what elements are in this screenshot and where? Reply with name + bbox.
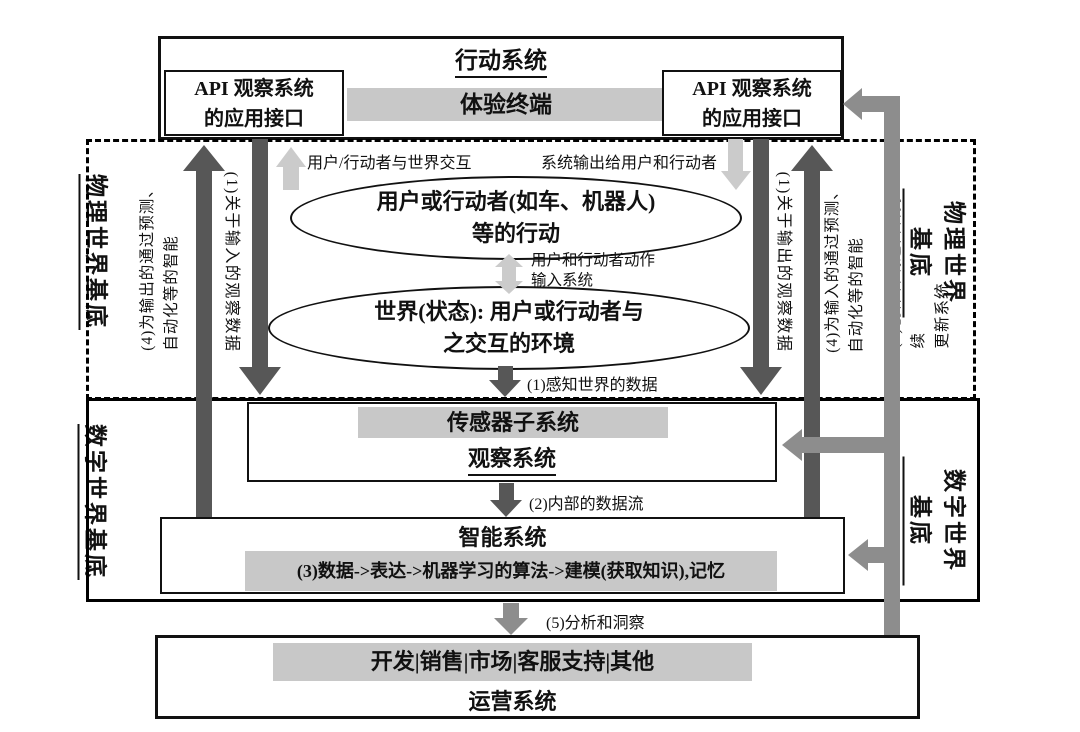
ml-pipeline-bar: (3)数据->表达->机器学习的算法->建模(获取知识),记忆 xyxy=(245,551,777,591)
action-input-double-arrow-bottom-icon xyxy=(495,281,523,297)
user-interaction-up-arrow-shaft xyxy=(283,162,299,190)
interaction-caption-right: 系统输出给用户和行动者 xyxy=(541,149,717,173)
observation-system-title-row: 观察系统 xyxy=(247,441,777,476)
internal-flow-arrow-shaft xyxy=(499,483,514,501)
right-down-arrow-head-icon xyxy=(740,367,782,398)
left-up-arrow-shaft xyxy=(196,166,212,517)
operations-functions-bar: 开发|销售|市场|客服支持|其他 xyxy=(273,643,752,681)
operations-title: 运营系统 xyxy=(468,684,556,719)
actor-ellipse-label: 用户或行动者(如车、机器人) 等的行动 xyxy=(377,186,656,250)
sensor-subsystem-bar: 传感器子系统 xyxy=(358,407,668,438)
system-output-down-arrow-shaft xyxy=(728,139,743,173)
observation-system-title: 观察系统 xyxy=(468,441,556,476)
right-up-arrow-shaft xyxy=(804,166,820,517)
observation-branch-head-icon xyxy=(779,429,802,461)
experience-terminal-label: 体验终端 xyxy=(347,88,665,121)
creator-update-bar xyxy=(884,96,900,635)
api-box-left: API 观察系统 的应用接口 xyxy=(164,70,344,136)
observation-branch-shaft xyxy=(798,437,884,453)
world-ellipse-label: 世界(状态): 用户或行动者与 之交互的环境 xyxy=(374,296,643,360)
sensor-subsystem-label: 传感器子系统 xyxy=(358,407,668,438)
left-down-arrow-head-icon xyxy=(239,367,281,398)
left-down-arrow-shaft xyxy=(252,139,268,368)
intelligence-system-title: 智能系统 xyxy=(458,520,546,555)
diagram-canvas: 行动系统 体验终端 API 观察系统 的应用接口 API 观察系统 的应用接口 … xyxy=(0,0,1080,732)
right-down-arrow-shaft xyxy=(753,139,769,368)
action-system-title: 行动系统 xyxy=(455,41,547,78)
action-input-caption: 用户和行动者动作 输入系统 xyxy=(531,251,655,290)
insight-caption: (5)分析和洞察 xyxy=(546,609,645,633)
actor-ellipse: 用户或行动者(如车、机器人) 等的行动 xyxy=(290,176,742,260)
creator-update-hook-shaft xyxy=(858,96,900,112)
internal-flow-arrow-head-icon xyxy=(490,500,522,520)
operations-title-row: 运营系统 xyxy=(273,684,752,719)
action-input-double-arrow-shaft xyxy=(502,262,516,283)
interaction-caption-left: 用户/行动者与世界交互 xyxy=(307,149,471,173)
api-box-right: API 观察系统 的应用接口 xyxy=(662,70,842,136)
perception-arrow-head-icon xyxy=(489,380,521,400)
insight-arrow-head-icon xyxy=(494,618,528,638)
perception-caption: (1)感知世界的数据 xyxy=(527,371,658,395)
creator-update-hook-head-icon xyxy=(840,88,862,120)
experience-terminal-bar: 体验终端 xyxy=(347,88,665,121)
intelligence-branch-head-icon xyxy=(845,539,868,571)
intelligence-system-title-row: 智能系统 xyxy=(160,520,845,555)
world-ellipse: 世界(状态): 用户或行动者与 之交互的环境 xyxy=(268,286,750,370)
system-output-down-arrow-head-icon xyxy=(721,171,751,193)
internal-flow-caption: (2)内部的数据流 xyxy=(529,490,644,514)
